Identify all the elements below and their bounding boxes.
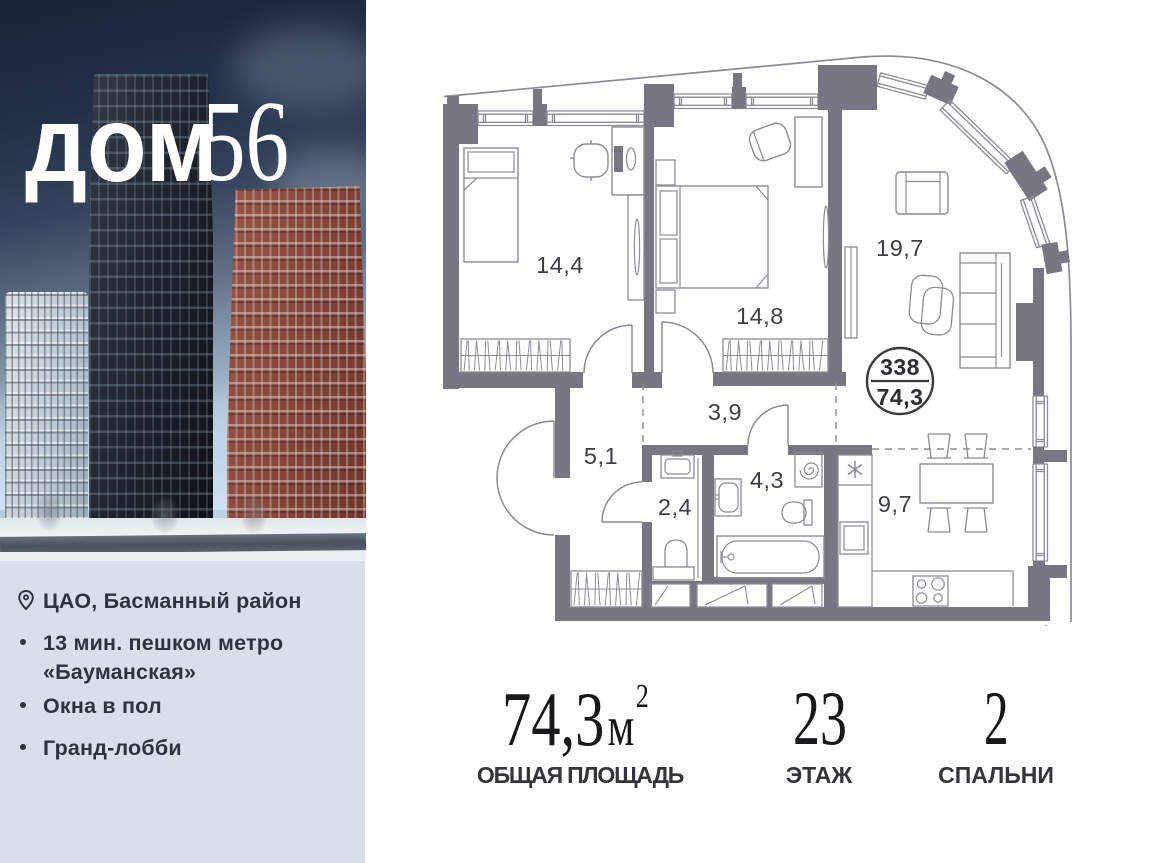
svg-text:9,7: 9,7 [878,491,912,517]
svg-text:5,1: 5,1 [584,443,618,469]
svg-text:338: 338 [880,354,920,380]
svg-text:19,7: 19,7 [876,235,924,261]
svg-text:14,4: 14,4 [536,252,584,278]
svg-text:3,9: 3,9 [708,399,742,425]
svg-text:4,3: 4,3 [750,467,784,493]
svg-text:2,4: 2,4 [658,494,692,520]
svg-text:14,8: 14,8 [736,303,784,329]
svg-text:74,3: 74,3 [877,384,924,410]
